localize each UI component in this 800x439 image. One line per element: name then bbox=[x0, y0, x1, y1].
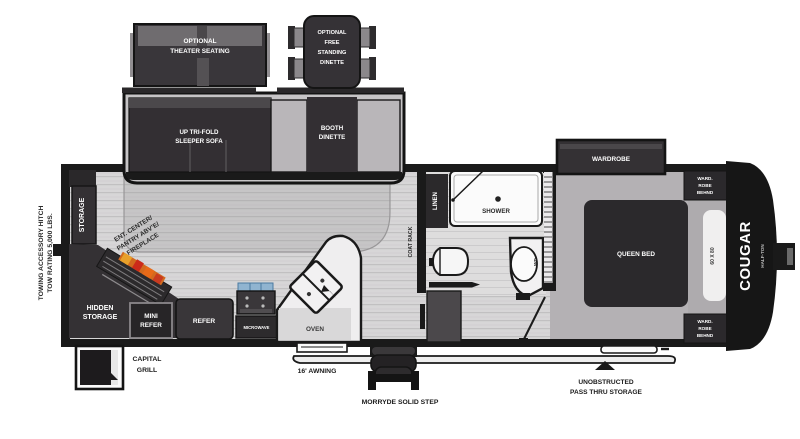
svg-text:DINETTE: DINETTE bbox=[319, 134, 345, 141]
svg-text:ROBE: ROBE bbox=[698, 183, 711, 188]
svg-text:16' AWNING: 16' AWNING bbox=[298, 368, 337, 375]
svg-text:UNOBSTRUCTED: UNOBSTRUCTED bbox=[578, 379, 634, 386]
svg-text:WD: WD bbox=[533, 257, 539, 266]
svg-text:STORAGE: STORAGE bbox=[83, 314, 118, 321]
svg-text:OVEN: OVEN bbox=[306, 326, 324, 333]
svg-text:GRILL: GRILL bbox=[137, 367, 157, 374]
svg-text:WARD.: WARD. bbox=[697, 176, 712, 181]
svg-text:OPTIONAL: OPTIONAL bbox=[318, 30, 347, 36]
svg-text:MICROWAVE: MICROWAVE bbox=[244, 325, 270, 330]
svg-text:BEHND: BEHND bbox=[697, 190, 714, 195]
svg-text:STORAGE: STORAGE bbox=[79, 197, 86, 232]
svg-text:BEHND: BEHND bbox=[697, 333, 714, 338]
svg-text:OPTIONAL: OPTIONAL bbox=[183, 38, 216, 45]
svg-text:STANDING: STANDING bbox=[318, 50, 347, 56]
svg-text:BOOTH: BOOTH bbox=[321, 125, 344, 132]
svg-text:DINETTE: DINETTE bbox=[320, 60, 344, 66]
svg-text:COUGAR: COUGAR bbox=[737, 221, 754, 291]
svg-text:THEATER SEATING: THEATER SEATING bbox=[170, 48, 229, 55]
svg-text:UP TRI-FOLD: UP TRI-FOLD bbox=[179, 129, 219, 136]
svg-text:TOW RATING 5,000 LBS.: TOW RATING 5,000 LBS. bbox=[47, 213, 54, 293]
svg-text:REFER: REFER bbox=[140, 322, 162, 329]
svg-text:SLEEPER SOFA: SLEEPER SOFA bbox=[175, 138, 223, 145]
svg-text:ROBE: ROBE bbox=[698, 326, 711, 331]
svg-text:FREE: FREE bbox=[325, 40, 340, 46]
svg-text:60 X 80: 60 X 80 bbox=[710, 247, 716, 264]
svg-text:MORRYDE SOLID STEP: MORRYDE SOLID STEP bbox=[362, 399, 439, 406]
svg-text:COAT RACK: COAT RACK bbox=[408, 226, 414, 257]
svg-text:REFER: REFER bbox=[193, 318, 216, 325]
svg-text:MINI: MINI bbox=[144, 313, 158, 320]
svg-text:WARD.: WARD. bbox=[697, 319, 712, 324]
svg-text:QUEEN BED: QUEEN BED bbox=[617, 251, 655, 258]
svg-text:SHOWER: SHOWER bbox=[482, 208, 510, 215]
svg-text:HIDDEN: HIDDEN bbox=[87, 305, 114, 312]
svg-text:TOWING ACCESSORY HITCH: TOWING ACCESSORY HITCH bbox=[38, 206, 45, 301]
svg-text:HALF-TON: HALF-TON bbox=[760, 244, 765, 268]
svg-text:WARDROBE: WARDROBE bbox=[592, 156, 631, 163]
svg-text:CAPITAL: CAPITAL bbox=[133, 356, 162, 363]
svg-text:PASS THRU STORAGE: PASS THRU STORAGE bbox=[570, 389, 643, 396]
svg-text:LINEN: LINEN bbox=[433, 192, 439, 210]
